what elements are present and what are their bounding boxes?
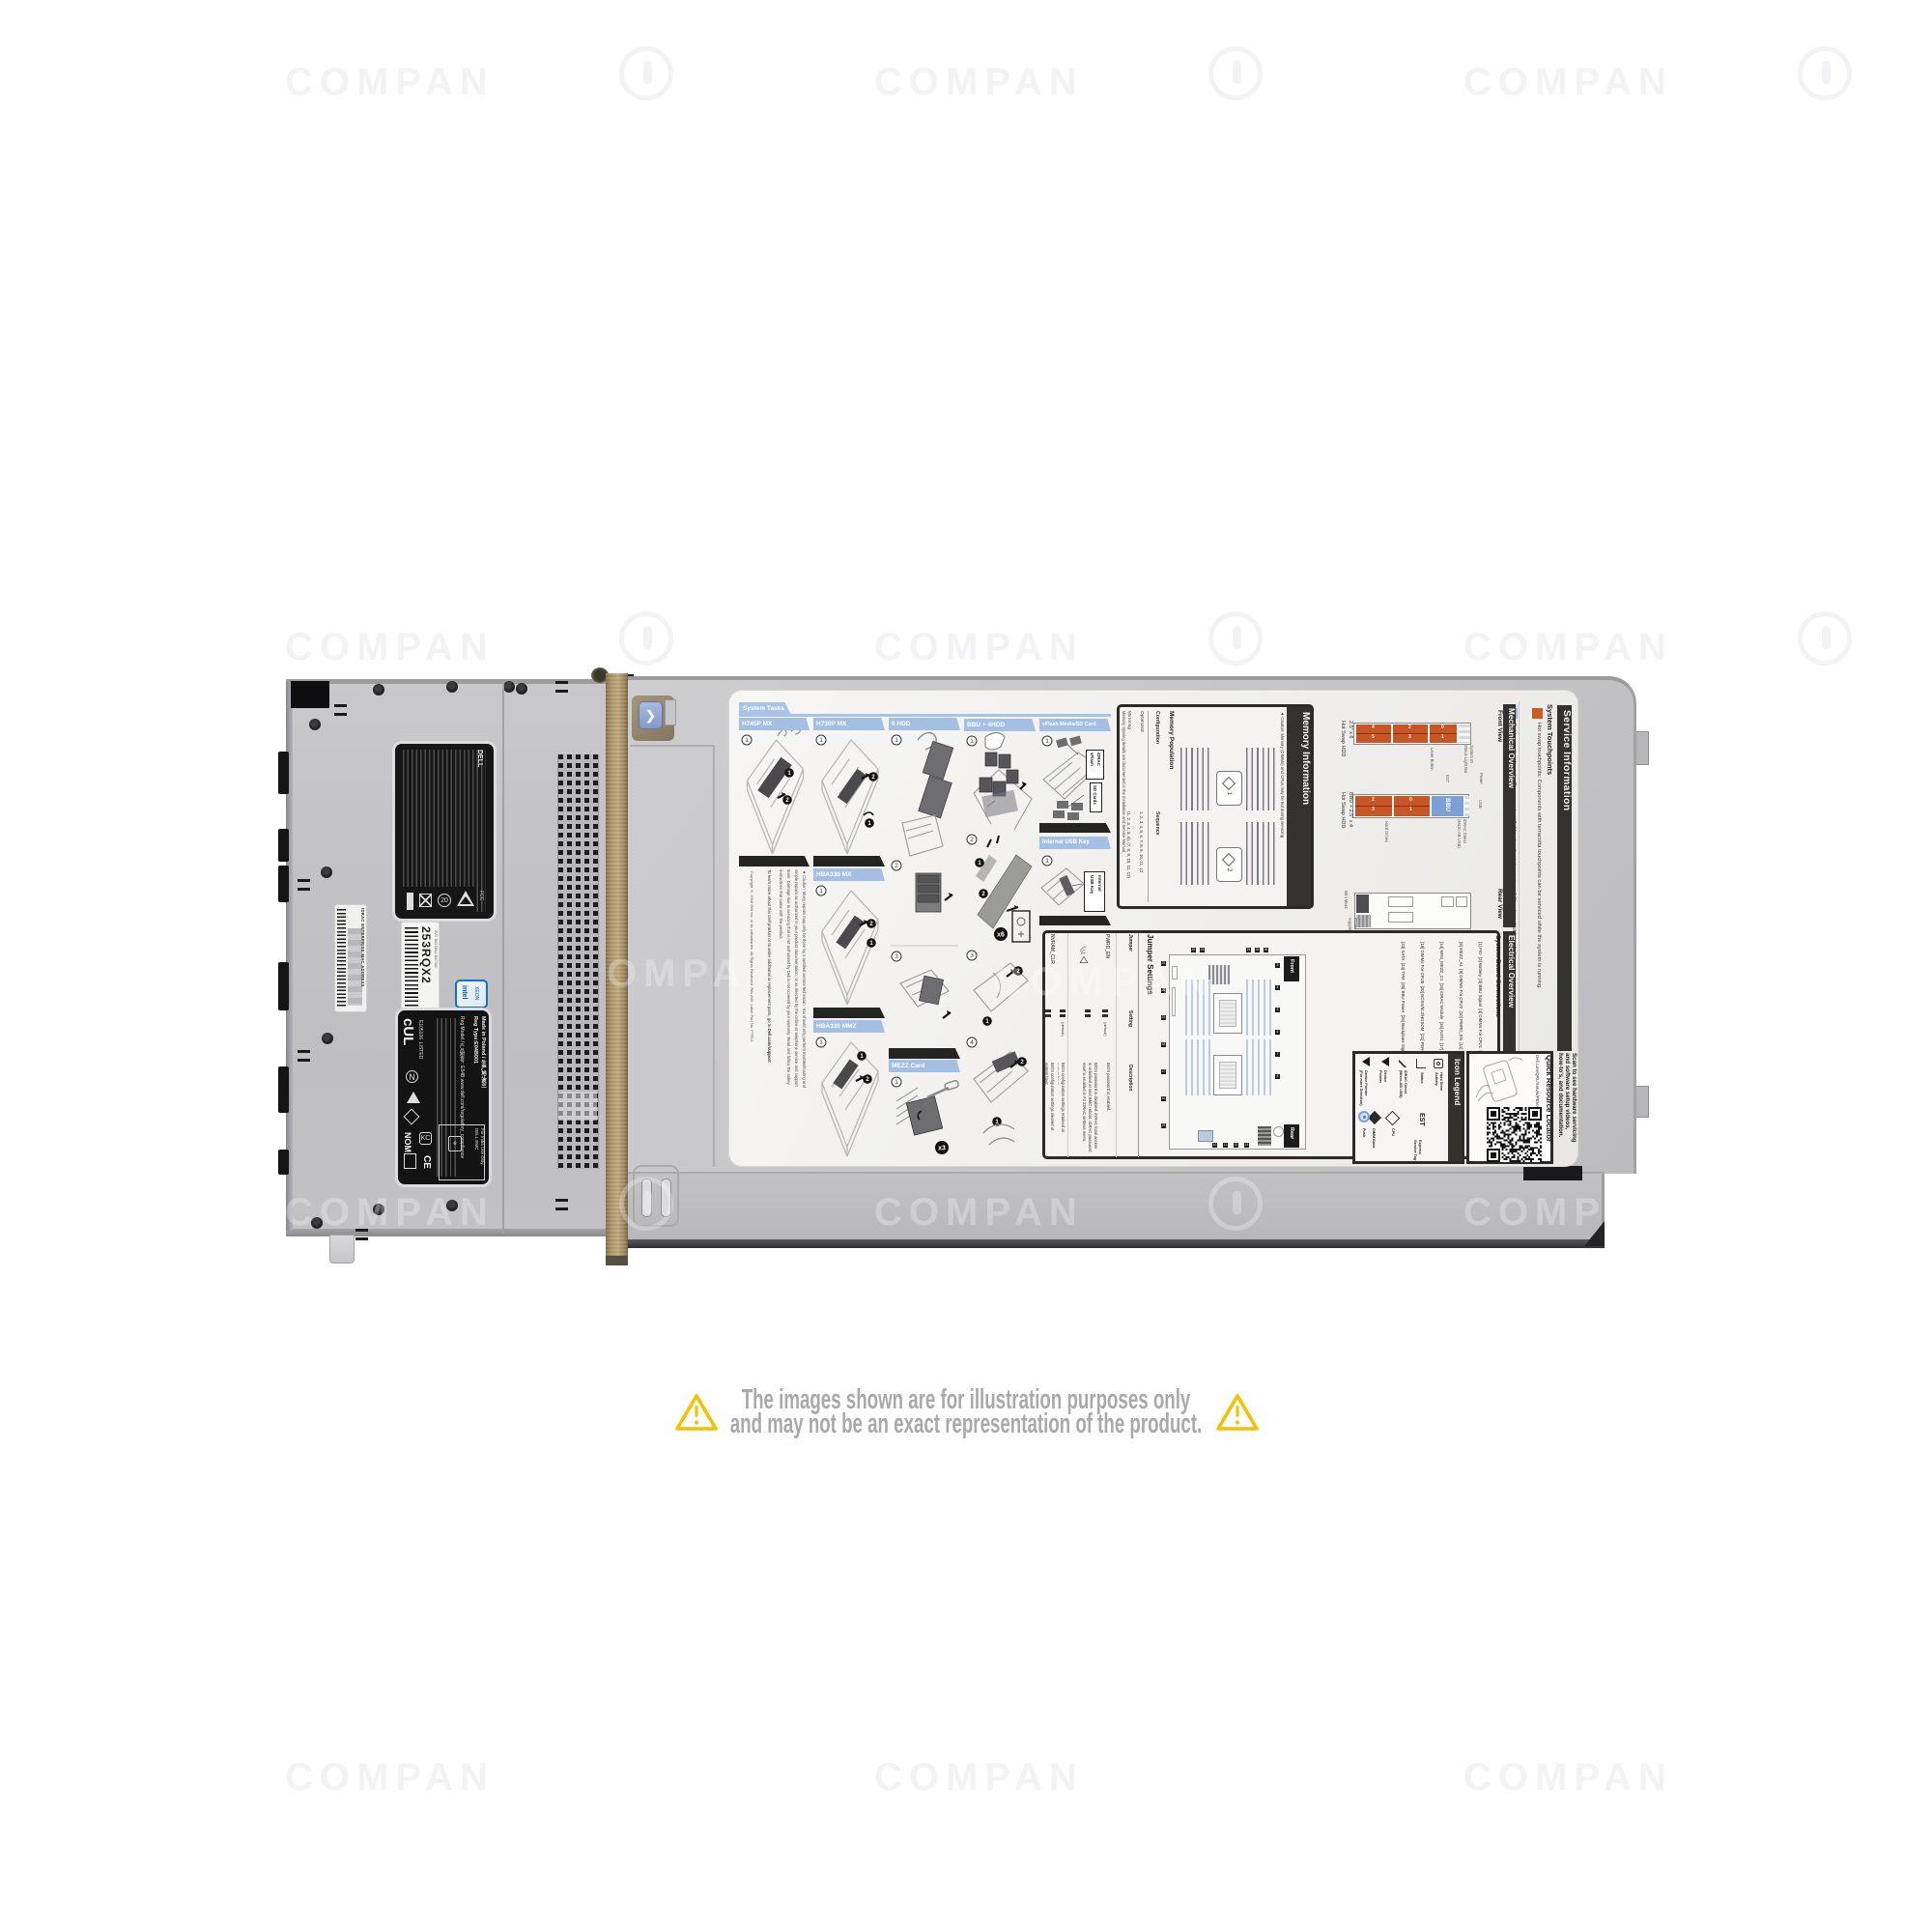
svg-text:1: 1	[819, 888, 823, 895]
svg-text:1: 1	[819, 1039, 823, 1046]
svg-text:2: 2	[970, 837, 974, 843]
svg-text:1: 1	[895, 1079, 898, 1086]
svg-text:1: 1	[1045, 738, 1049, 745]
svg-text:3: 3	[970, 952, 974, 959]
svg-text:1: 1	[745, 737, 749, 744]
svg-text:2: 2	[895, 863, 898, 869]
svg-text:x3: x3	[938, 1146, 946, 1152]
svg-text:1: 1	[970, 738, 974, 745]
svg-text:1: 1	[819, 737, 823, 744]
svg-text:3: 3	[895, 953, 898, 960]
svg-text:1: 1	[895, 737, 898, 744]
svg-text:4: 4	[970, 1039, 974, 1046]
svg-text:x6: x6	[997, 932, 1005, 939]
svg-text:1: 1	[1045, 858, 1049, 865]
